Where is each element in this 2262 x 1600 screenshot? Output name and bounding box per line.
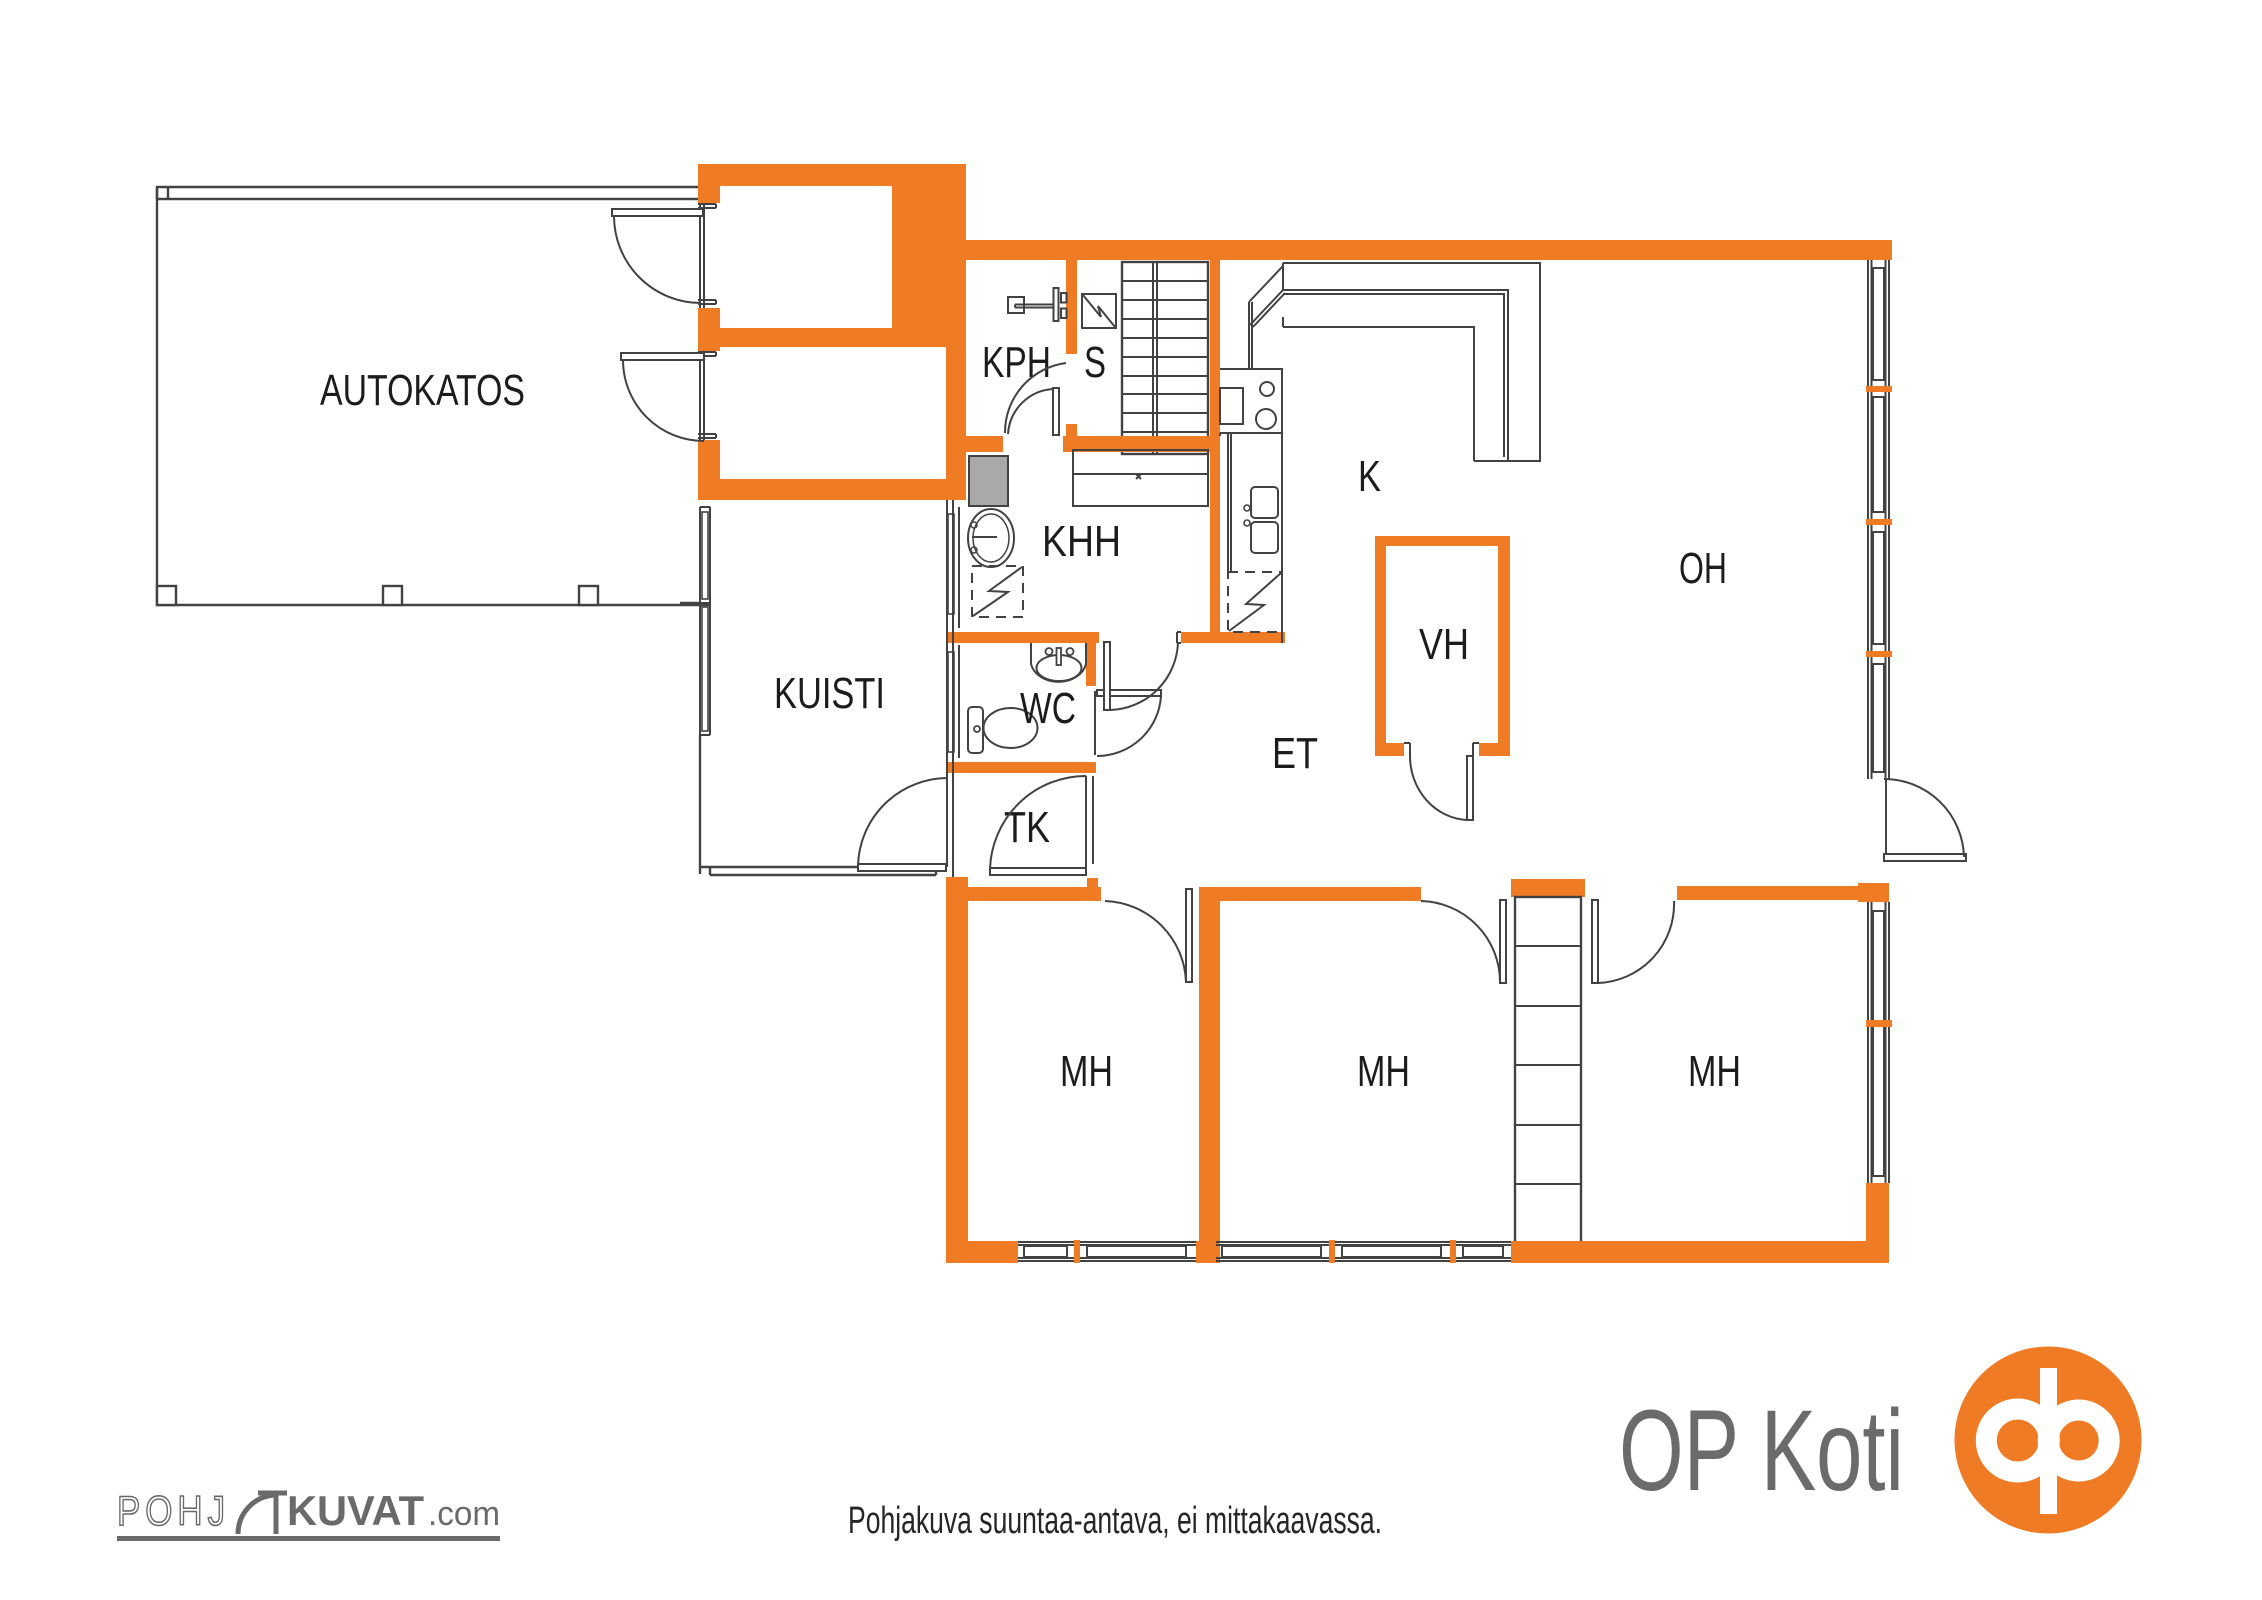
svg-text:K: K	[1358, 452, 1381, 501]
svg-text:AUTOKATOS: AUTOKATOS	[320, 366, 525, 415]
svg-text:S: S	[1084, 338, 1106, 387]
svg-text:MH: MH	[1688, 1047, 1741, 1096]
svg-text:.com: .com	[428, 1495, 500, 1533]
svg-text:MH: MH	[1357, 1047, 1410, 1096]
svg-text:ET: ET	[1272, 729, 1318, 778]
svg-text:KPH: KPH	[982, 338, 1051, 387]
svg-text:TK: TK	[1004, 803, 1050, 852]
svg-text:KUISTI: KUISTI	[774, 669, 885, 718]
svg-text:OP Koti: OP Koti	[1619, 1387, 1904, 1515]
svg-text:OH: OH	[1679, 544, 1727, 593]
svg-text:POHJ: POHJ	[117, 1487, 230, 1534]
svg-text:MH: MH	[1060, 1047, 1113, 1096]
svg-text:Pohjakuva suuntaa-antava, ei m: Pohjakuva suuntaa-antava, ei mittakaavas…	[848, 1500, 1382, 1542]
svg-text:KUVAT: KUVAT	[287, 1487, 424, 1534]
svg-text:KHH: KHH	[1042, 517, 1121, 566]
svg-text:VH: VH	[1419, 620, 1469, 669]
svg-text:WC: WC	[1020, 684, 1076, 733]
